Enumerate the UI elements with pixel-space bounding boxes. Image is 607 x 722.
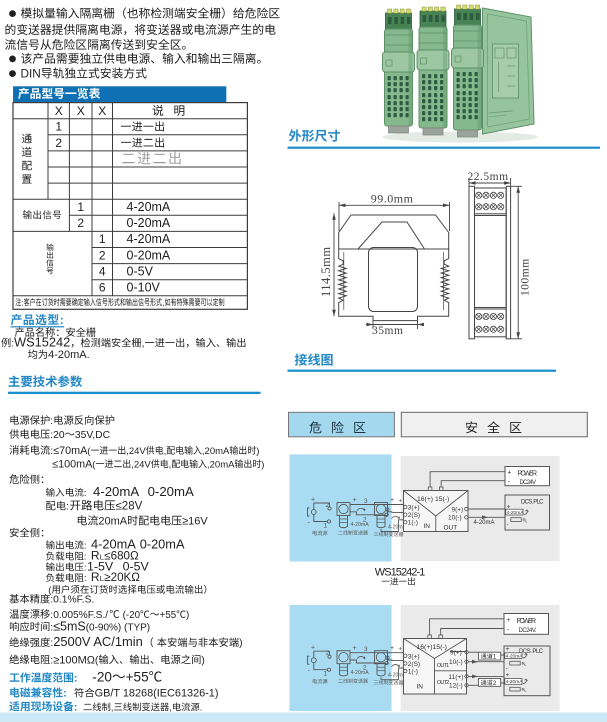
svg-text:4-20mA.: 4-20mA. — [48, 349, 90, 361]
svg-text:X: X — [77, 104, 85, 118]
svg-text:(: ( — [92, 459, 96, 470]
svg-text:≥16V: ≥16V — [182, 516, 208, 528]
svg-text:≥100MΩ: ≥100MΩ — [53, 654, 95, 666]
svg-text:4-20mA: 4-20mA — [93, 484, 139, 499]
svg-text:1: 1 — [99, 232, 106, 246]
svg-text:2(S): 2(S) — [408, 661, 420, 668]
svg-text:,24V: ,24V — [126, 446, 146, 457]
svg-text:0-10V: 0-10V — [127, 281, 161, 295]
svg-text::: : — [74, 673, 78, 685]
svg-text:2: 2 — [326, 650, 330, 657]
svg-text::: : — [63, 688, 67, 700]
svg-text:IN: IN — [417, 683, 424, 690]
svg-text:+55: +55 — [126, 670, 149, 685]
svg-text:3: 3 — [364, 498, 368, 505]
svg-text:0-20mA: 0-20mA — [127, 216, 171, 230]
svg-text:DC24V: DC24V — [520, 480, 537, 486]
svg-text:DCS. PLC: DCS. PLC — [521, 499, 544, 505]
svg-text:,20mA: ,20mA — [207, 459, 235, 470]
svg-text:2(S): 2(S) — [408, 512, 420, 519]
svg-text:R: R — [91, 570, 100, 584]
svg-text:OUT1: OUT1 — [437, 663, 450, 669]
svg-text:2500V AC/1min: 2500V AC/1min — [53, 634, 143, 649]
svg-text:,24V: ,24V — [131, 459, 151, 470]
svg-text:POWER: POWER — [517, 618, 537, 625]
svg-text:): ) — [239, 638, 242, 649]
svg-text:1(-): 1(-) — [408, 669, 418, 676]
svg-text::: : — [21, 297, 23, 307]
svg-text:(: ( — [87, 446, 91, 457]
svg-text:114.5mm: 114.5mm — [319, 246, 333, 297]
svg-text:0-5V: 0-5V — [127, 264, 154, 278]
svg-text:WS15242: WS15242 — [14, 334, 70, 349]
svg-text:99.0mm: 99.0mm — [371, 192, 414, 206]
svg-text:.: . — [200, 702, 203, 712]
svg-text:1: 1 — [493, 654, 497, 661]
svg-text:9(+): 9(+) — [450, 649, 462, 656]
svg-text:-20: -20 — [92, 670, 112, 685]
svg-text::0.1%F.S.: :0.1%F.S. — [50, 595, 94, 606]
svg-text:0-20mA: 0-20mA — [140, 537, 185, 552]
svg-text::20: :20 — [50, 430, 65, 441]
svg-text:WS15242-1: WS15242-1 — [375, 567, 426, 579]
svg-text:,: , — [162, 297, 164, 307]
svg-text:16(+)15(-): 16(+)15(-) — [417, 644, 447, 651]
svg-text::: : — [84, 488, 87, 499]
svg-text:4-20mA: 4-20mA — [507, 510, 525, 516]
svg-text:4-20mA: 4-20mA — [127, 200, 171, 214]
svg-text:X: X — [98, 104, 106, 118]
svg-text:3(+): 3(+) — [408, 653, 420, 660]
svg-text:0-20mA: 0-20mA — [127, 248, 171, 262]
svg-text:+: + — [311, 645, 315, 652]
svg-text:3(+): 3(+) — [408, 504, 420, 511]
svg-text::: : — [50, 416, 53, 427]
svg-text:4: 4 — [99, 264, 106, 278]
svg-text:1: 1 — [324, 523, 328, 530]
svg-text:(0-90%) (TYP): (0-90%) (TYP) — [86, 622, 150, 633]
svg-text:OUT2: OUT2 — [437, 680, 450, 686]
svg-text:+: + — [506, 672, 510, 679]
svg-text:≤100mA: ≤100mA — [52, 458, 93, 470]
svg-text:OUT: OUT — [444, 525, 458, 532]
svg-text:,: , — [169, 459, 172, 470]
svg-text:,: , — [169, 702, 172, 712]
svg-text:DCS. PLC: DCS. PLC — [519, 649, 544, 655]
svg-text:1: 1 — [55, 120, 62, 134]
svg-text:1: 1 — [324, 671, 328, 678]
svg-text::: : — [74, 701, 78, 713]
svg-text:6: 6 — [99, 281, 106, 295]
svg-text:(-20: (-20 — [123, 610, 141, 621]
svg-text:,: , — [164, 446, 167, 457]
svg-text:L: L — [525, 689, 527, 693]
svg-text:,: , — [111, 702, 114, 712]
svg-text:16(+) 15(-): 16(+) 15(-) — [417, 496, 449, 503]
svg-text:22.5mm: 22.5mm — [468, 171, 509, 183]
svg-text:4-20mA: 4-20mA — [506, 679, 524, 685]
svg-text:L: L — [526, 520, 528, 524]
svg-text:+: + — [390, 645, 394, 652]
svg-text:): ) — [201, 655, 204, 666]
svg-text:+: + — [311, 497, 315, 504]
svg-text:11(+): 11(+) — [449, 674, 464, 681]
svg-text:X: X — [55, 104, 63, 118]
svg-text:≤28V: ≤28V — [116, 501, 143, 513]
svg-text:L: L — [525, 663, 527, 667]
svg-text:20mA: 20mA — [98, 516, 127, 528]
svg-text:IN: IN — [424, 523, 431, 530]
svg-text:POWER: POWER — [518, 470, 538, 477]
svg-text:35V,DC: 35V,DC — [75, 430, 111, 441]
svg-text:,20mA: ,20mA — [202, 446, 230, 457]
svg-text:+: + — [507, 469, 511, 476]
svg-text:2: 2 — [77, 216, 84, 230]
svg-text:2: 2 — [99, 248, 106, 262]
svg-text:2: 2 — [326, 502, 330, 509]
svg-text:+: + — [390, 497, 394, 504]
svg-text:0-20mA: 0-20mA — [148, 484, 194, 499]
svg-text::: : — [66, 502, 69, 513]
svg-text::: : — [84, 541, 87, 552]
svg-text:2: 2 — [55, 136, 62, 150]
svg-text:2: 2 — [493, 680, 497, 687]
svg-text:+: + — [399, 647, 403, 653]
svg-text:4-20mA: 4-20mA — [474, 520, 495, 526]
svg-text:DIN: DIN — [21, 67, 41, 81]
svg-text:4-20mA: 4-20mA — [127, 232, 171, 246]
svg-text:10(-): 10(-) — [449, 659, 463, 666]
svg-text:≤70mA: ≤70mA — [53, 445, 88, 457]
svg-text:+: + — [506, 617, 510, 624]
svg-text:+55: +55 — [160, 610, 177, 621]
svg-text::: : — [84, 573, 87, 584]
svg-text:4-20mA: 4-20mA — [351, 522, 370, 528]
svg-text:GB/T 18268(IEC61326-1): GB/T 18268(IEC61326-1) — [95, 688, 219, 700]
svg-text:(: ( — [95, 655, 99, 666]
svg-text:≥20KΩ: ≥20KΩ — [104, 571, 140, 584]
svg-text:-: - — [507, 522, 509, 529]
svg-text:4-20mA: 4-20mA — [351, 670, 370, 676]
svg-text:100mm: 100mm — [520, 258, 532, 296]
svg-text:): ) — [256, 446, 259, 457]
svg-text:+: + — [506, 646, 510, 653]
svg-text:4-20mA: 4-20mA — [506, 653, 524, 659]
svg-text:9(+): 9(+) — [452, 506, 464, 513]
svg-text:12(-): 12(-) — [449, 683, 463, 690]
svg-text:+: + — [353, 497, 357, 504]
svg-text:3: 3 — [364, 646, 368, 653]
svg-text:): ) — [186, 610, 189, 621]
svg-text:DC24V.: DC24V. — [519, 628, 537, 634]
svg-text::: : — [60, 313, 64, 327]
svg-text:,: , — [142, 338, 145, 349]
svg-text:≤5mS: ≤5mS — [53, 619, 86, 633]
svg-text:+: + — [353, 645, 357, 652]
svg-text:1: 1 — [77, 200, 84, 214]
svg-text:): ) — [261, 459, 264, 470]
svg-text:1(-): 1(-) — [408, 520, 418, 527]
svg-text:35mm: 35mm — [372, 325, 403, 337]
svg-text:+: + — [399, 499, 403, 505]
svg-text:10(-): 10(-) — [448, 515, 462, 522]
